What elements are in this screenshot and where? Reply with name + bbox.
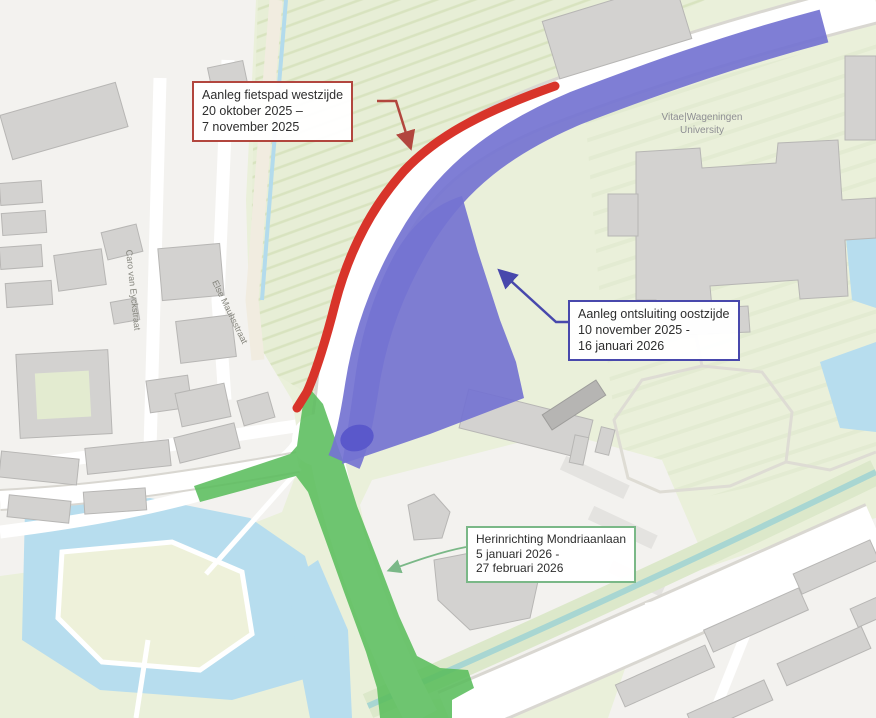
- callout-date-end: 27 februari 2026: [476, 561, 626, 576]
- construction-phasing-map: Vitae|Wageningen University Caro van Eyc…: [0, 0, 876, 718]
- callout-title: Aanleg fietspad westzijde: [202, 87, 343, 103]
- callout-date-end: 16 januari 2026: [578, 338, 730, 354]
- callout-title: Aanleg ontsluiting oostzijde: [578, 306, 730, 322]
- university-label-line1: Vitae|Wageningen: [662, 112, 743, 123]
- callout-fietspad-westzijde: Aanleg fietspad westzijde 20 oktober 202…: [192, 81, 353, 142]
- callout-date-start: 5 januari 2026 -: [476, 547, 626, 562]
- map-canvas: Vitae|Wageningen University Caro van Eyc…: [0, 0, 876, 718]
- callout-date-start: 20 oktober 2025 –: [202, 103, 343, 119]
- callout-title: Herinrichting Mondriaanlaan: [476, 532, 626, 547]
- university-label-line2: University: [680, 125, 724, 136]
- callout-date-start: 10 november 2025 -: [578, 322, 730, 338]
- callout-date-end: 7 november 2025: [202, 119, 343, 135]
- callout-herinrichting-mondriaanlaan: Herinrichting Mondriaanlaan 5 januari 20…: [466, 526, 636, 583]
- callout-ontsluiting-oostzijde: Aanleg ontsluiting oostzijde 10 november…: [568, 300, 740, 361]
